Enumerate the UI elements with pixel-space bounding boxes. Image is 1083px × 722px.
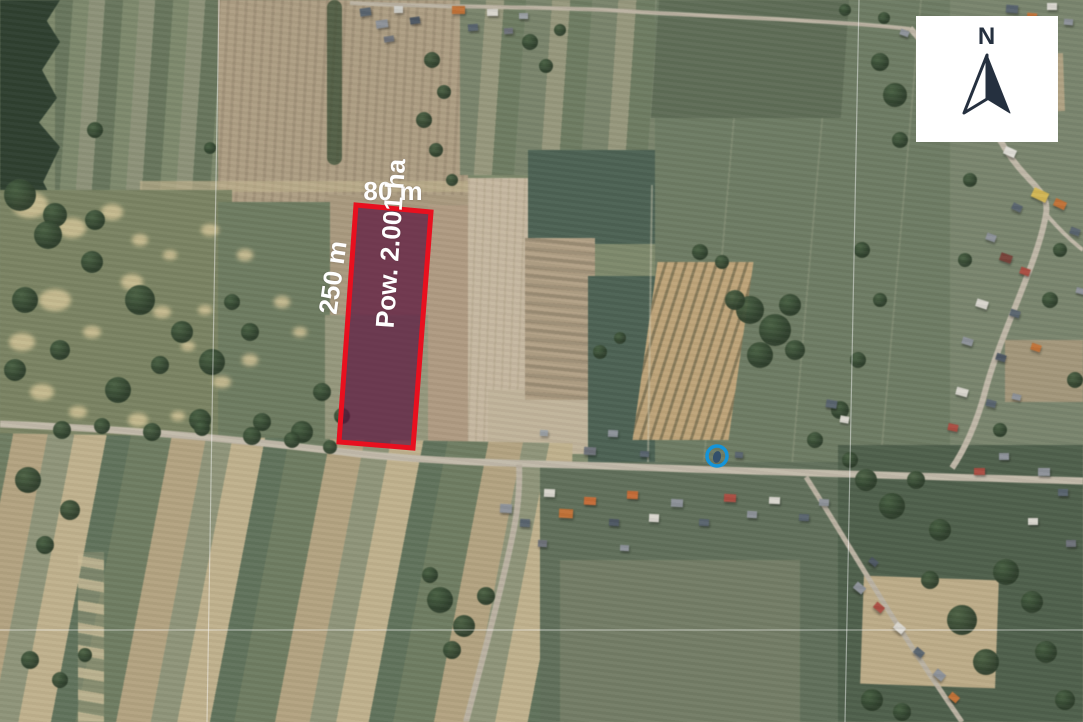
car-on-road <box>712 450 722 463</box>
north-compass: N <box>916 16 1058 142</box>
aerial-map: 80 m 250 m Pow. 2.001 ha N <box>0 0 1083 722</box>
north-label: N <box>978 25 996 49</box>
north-arrow-icon <box>962 52 1012 118</box>
